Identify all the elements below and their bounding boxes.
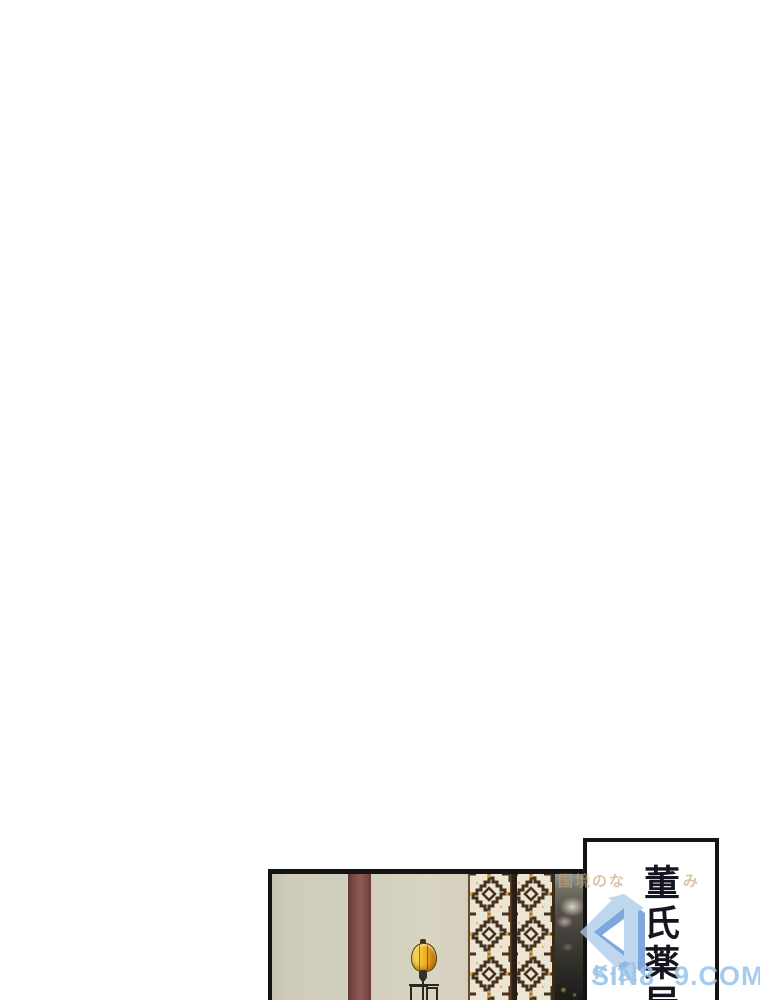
webtoon-page: 董氏薬局 国境のな み K-漫 SIN8 9.COM bbox=[0, 0, 760, 1000]
caption-text: 董氏薬局 bbox=[641, 864, 677, 1000]
wall-right bbox=[371, 874, 468, 1000]
lantern-stand-frame-side bbox=[428, 987, 438, 1000]
lattice-divider bbox=[510, 874, 517, 1000]
wood-pillar bbox=[348, 874, 371, 1000]
lantern-stand-frame bbox=[410, 985, 428, 1000]
wall-left bbox=[272, 874, 348, 1000]
mural-strip bbox=[555, 874, 583, 1000]
lantern-body bbox=[411, 943, 437, 972]
